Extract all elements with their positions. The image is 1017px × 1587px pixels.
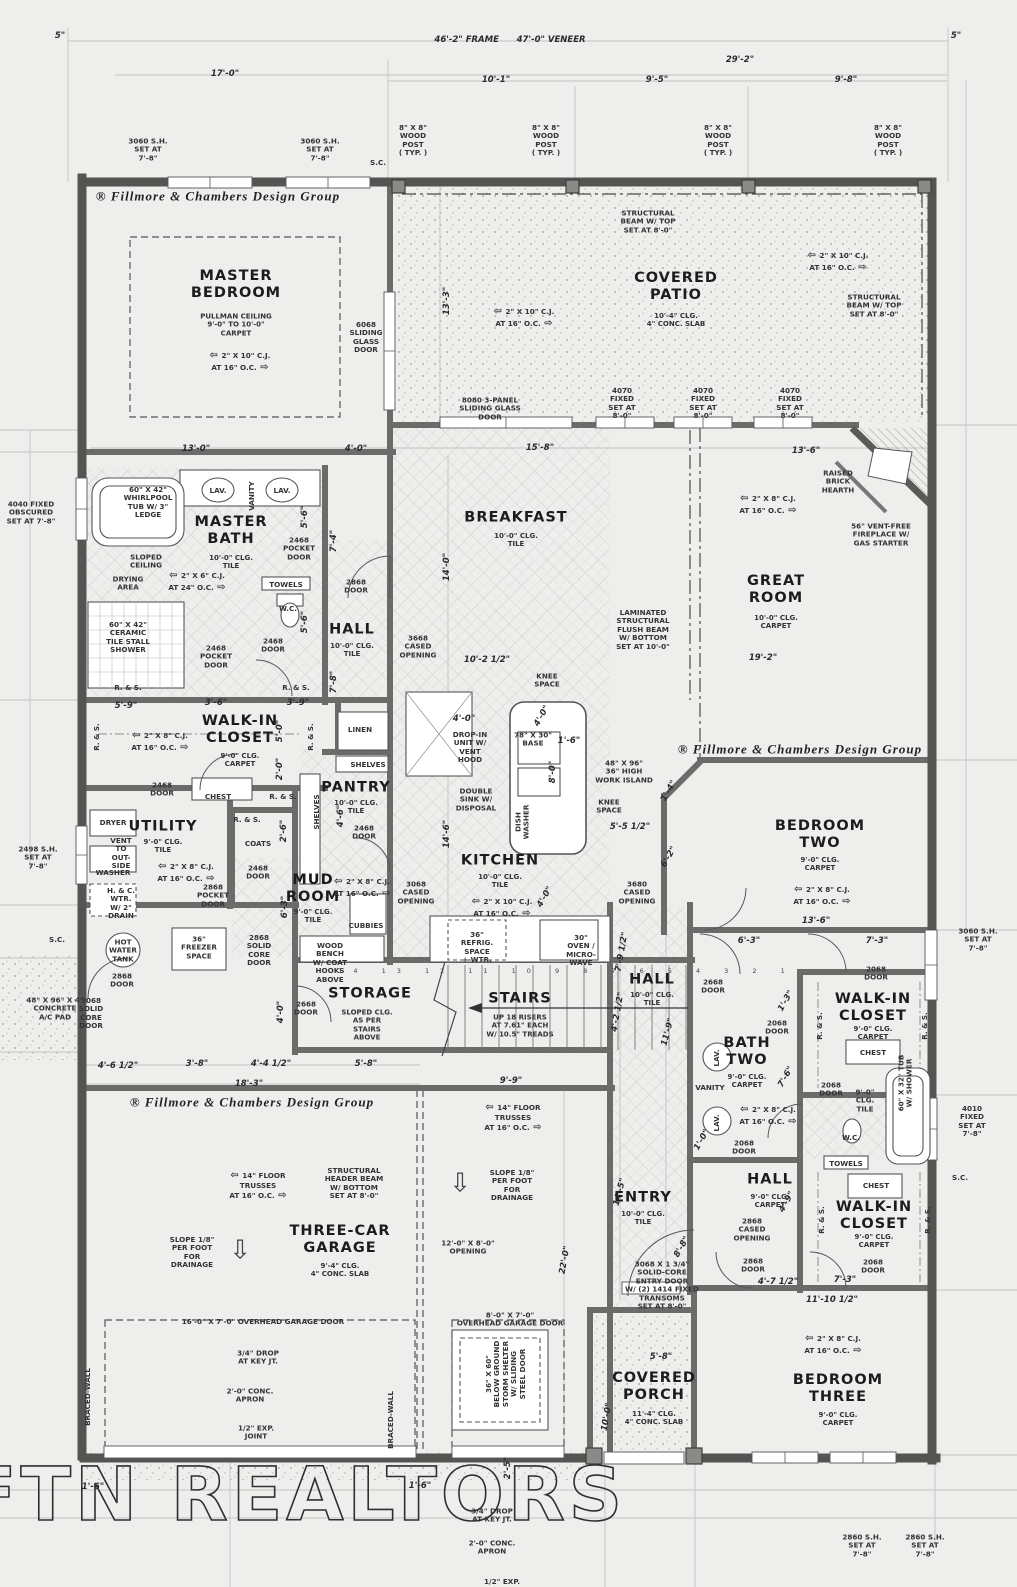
dimension: 9'-9" <box>500 1076 522 1086</box>
room-label-walk-in-closet: WALK-IN CLOSET <box>836 1199 912 1233</box>
note-label: 2868 POCKET DOOR <box>197 883 229 908</box>
dimension: 13'-0" <box>182 444 210 454</box>
note-label: H. & C. WTR. W/ 2" DRAIN <box>107 887 135 921</box>
room-detail-bath-two: 9'-0" CLG. CARPET <box>728 1073 767 1090</box>
note-label: 2860 S.H. SET AT 7'-8" <box>842 1533 881 1558</box>
dimension: 13'-3" <box>442 287 452 315</box>
dimension: 7'-3" <box>866 936 888 946</box>
note-label: 3068 X 1 3/4" SOLID-CORE ENTRY DOOR W/ (… <box>625 1261 699 1312</box>
note-label: R. & S. <box>307 723 315 751</box>
note-label: 2" X 6" C.J. AT 24" O.C. <box>168 570 225 594</box>
dimension: 18'-3" <box>235 1079 263 1089</box>
note-label: 3068 SOLID CORE DOOR <box>79 997 104 1031</box>
note-label: 2868 CASED OPENING <box>734 1217 771 1242</box>
dimension: 4'-6" <box>336 805 346 827</box>
room-detail-master-bath: 10'-0" CLG. TILE <box>209 554 253 571</box>
note-label: 3060 S.H. SET AT 7'-8" <box>128 137 167 162</box>
note-label: R. & S. <box>93 723 101 751</box>
note-label: DOUBLE SINK W/ DISPOSAL <box>456 787 497 812</box>
note-label: 2468 DOOR <box>150 782 174 799</box>
note-label: 30" OVEN / MICRO- WAVE <box>566 934 596 968</box>
room-detail-great-room: 10'-0" CLG. CARPET <box>754 614 798 631</box>
dimension: 19'-2" <box>749 653 777 663</box>
note-label: R. & S. <box>921 1012 929 1040</box>
note-label: R. & S. <box>269 793 297 801</box>
note-label: 2468 DOOR <box>261 638 285 655</box>
note-label: 2" X 8" C.J. AT 16" O.C. <box>804 1333 861 1357</box>
room-label-breakfast: BREAKFAST <box>464 509 567 526</box>
note-label: 2" X 8" C.J. AT 16" O.C. <box>157 861 214 885</box>
note-label: LAV. <box>273 487 290 495</box>
note-label: 3060 S.H. SET AT 7'-8" <box>958 927 997 952</box>
dimension: 7'-6" <box>776 1065 796 1089</box>
note-label: 2" X 8" C.J. AT 16" O.C. <box>131 730 188 754</box>
note-label: W.C. <box>842 1134 860 1142</box>
note-label: LAV. <box>209 487 226 495</box>
room-label-kitchen: KITCHEN <box>461 852 539 869</box>
room-label-great-room: GREAT ROOM <box>747 573 805 607</box>
note-label: W.C. <box>279 605 297 613</box>
dimension: 5'-8" <box>355 1059 377 1069</box>
dimension: 6'-2" <box>659 845 679 869</box>
note-label: S.C. <box>49 936 65 944</box>
dimension: 5'-8" <box>650 1352 672 1362</box>
dimension: 22'-0" <box>558 1245 573 1275</box>
drainage-slope-arrow: ⇩ <box>449 1169 471 1200</box>
room-detail-walk-in-closet: 9'-0" CLG. CARPET <box>854 1025 893 1042</box>
note-label: 36" X 60" BELOW GROUND STORM SHELTER W/ … <box>485 1341 527 1408</box>
note-label: 2468 DOOR <box>246 865 270 882</box>
dimension: 4'-0" <box>535 885 555 909</box>
room-detail-hall: 10'-0" CLG. TILE <box>330 642 374 659</box>
note-label: 8'-0" X 7'-0" OVERHEAD GARAGE DOOR <box>457 1312 563 1329</box>
note-label: 2" X 10" C.J. AT 16" O.C. <box>494 306 555 330</box>
design-group-stamp: ® Fillmore & Chambers Design Group <box>678 741 922 756</box>
note-label: 2" X 10" C.J. AT 16" O.C. <box>210 350 271 374</box>
note-label: R. & S. <box>114 684 142 692</box>
note-label: S.C. <box>952 1174 968 1182</box>
dimension: 1'-4" <box>659 779 679 803</box>
room-label-hall: HALL <box>329 621 375 638</box>
room-label-bedroom-two: BEDROOM TWO <box>775 818 865 852</box>
note-label: LINEN <box>348 726 372 734</box>
note-label: 4070 FIXED SET AT 8'-0" <box>608 387 635 421</box>
note-label: 2" X 8" C.J. AT 16" O.C. <box>739 493 796 517</box>
note-label: S.C. <box>370 159 386 167</box>
design-group-stamp: ® Fillmore & Chambers Design Group <box>130 1094 374 1109</box>
note-label: 2" X 10" C.J. AT 16" O.C. <box>472 896 533 920</box>
dimension: 5'-5 1/2" <box>610 822 650 832</box>
note-label: 48" X 96" X 4" CONCRETE A/C PAD <box>26 996 83 1021</box>
drainage-slope-arrow: ⇩ <box>229 1236 251 1267</box>
stair-tread-numbers: 14 13 12 11 10 9 8 7 6 5 4 3 2 1 <box>338 968 795 976</box>
dimension: 4'-4 1/2" <box>251 1059 291 1069</box>
room-detail-walk-in-closet: 9'-0" CLG. CARPET <box>221 752 260 769</box>
note-label: 3060 S.H. SET AT 7'-8" <box>300 137 339 162</box>
dimension: 1'-3" <box>776 989 796 1013</box>
note-label: 2" X 8" C.J. AT 16" O.C. <box>333 876 390 900</box>
note-label: 2468 POCKET DOOR <box>283 536 315 561</box>
room-detail-hall: 10'-0" CLG. TILE <box>630 991 674 1008</box>
note-label: 2498 S.H. SET AT 7'-8" <box>18 845 57 870</box>
dimension: 8'-8" <box>672 1235 692 1259</box>
note-label: DROP-IN UNIT W/ VENT HOOD <box>453 731 487 765</box>
dimension: 5" <box>951 31 961 41</box>
dimension: 6'-3" <box>280 896 290 918</box>
note-label: 1/2" EXP. <box>484 1578 520 1586</box>
note-label: SLOPE 1/8" PER FOOT FOR DRAINAGE <box>490 1169 535 1203</box>
note-label: 2668 DOOR <box>701 979 725 996</box>
note-label: COATS <box>245 840 271 848</box>
note-label: CHEST <box>860 1049 886 1057</box>
note-label: TOWELS <box>829 1160 863 1168</box>
dimension: 6'-3" <box>738 936 760 946</box>
note-label: CHEST <box>205 793 231 801</box>
room-detail-covered-patio: 10'-4" CLG. 4" CONC. SLAB <box>647 312 705 329</box>
note-label: STRUCTURAL BEAM W/ TOP SET AT 8'-0" <box>847 293 902 318</box>
note-label: R. & S. <box>233 816 261 824</box>
note-label: WASHER <box>96 869 131 877</box>
note-label: LAMINATED STRUCTURAL FLUSH BEAM W/ BOTTO… <box>616 609 670 651</box>
room-label-covered-porch: COVERED PORCH <box>612 1370 696 1404</box>
note-label: 3/4" DROP AT KEY JT. <box>237 1350 279 1367</box>
room-label-master-bath: MASTER BATH <box>194 514 267 548</box>
note-label: VANITY <box>695 1084 724 1092</box>
labels-layer: MASTER BEDROOMPULLMAN CEILING 9'-0" TO 1… <box>0 0 1017 1587</box>
note-label: 2'-0" CONC. APRON <box>227 1388 274 1405</box>
note-label: VENT TO OUT- SIDE <box>110 837 131 871</box>
note-label: 2468 DOOR <box>352 825 376 842</box>
note-label: R. & S. <box>924 1206 932 1234</box>
note-label: 4040 FIXED OBSCURED SET AT 7'-8" <box>7 500 56 525</box>
room-detail-covered-porch: 11'-4" CLG. 4" CONC. SLAB <box>625 1410 683 1427</box>
dimension: 10'-1" <box>482 75 510 85</box>
note-label: KNEE SPACE <box>596 799 622 816</box>
note-label: DISH WASHER <box>515 805 532 840</box>
note-label: 9'-0" CLG. TILE <box>856 1088 875 1113</box>
room-label-utility: UTILITY <box>128 818 197 835</box>
room-label-master-bedroom: MASTER BEDROOM <box>191 268 281 302</box>
note-label: HOT WATER TANK <box>109 938 137 963</box>
floorplan-sheet: MASTER BEDROOMPULLMAN CEILING 9'-0" TO 1… <box>0 0 1017 1587</box>
note-label: 2" X 10" C.J. AT 16" O.C. <box>808 250 869 274</box>
dimension: 29'-2" <box>726 55 754 65</box>
note-label: 3680 CASED OPENING <box>619 880 656 905</box>
note-label: LAV. <box>713 1049 721 1066</box>
dimension: 13'-6" <box>792 446 820 456</box>
note-label: 2468 POCKET DOOR <box>200 644 232 669</box>
room-label-walk-in-closet: WALK-IN CLOSET <box>202 713 278 747</box>
room-label-hall: HALL <box>747 1171 793 1188</box>
dimension: 2'-0" <box>275 758 285 780</box>
note-label: TOWELS <box>269 581 303 589</box>
room-label-pantry: PANTRY <box>321 779 390 796</box>
note-label: 2068 DOOR <box>765 1020 789 1037</box>
dimension: 14'-0" <box>442 553 452 581</box>
note-label: 2" X 8" C.J. AT 16" O.C. <box>793 884 850 908</box>
dimension: 1'-0" <box>692 1128 712 1152</box>
room-label-covered-patio: COVERED PATIO <box>634 270 718 304</box>
note-label: 2'-0" CONC. APRON <box>469 1540 516 1557</box>
note-label: 8" X 8" WOOD POST ( TYP. ) <box>532 124 560 158</box>
note-label: SLOPED CEILING <box>130 554 162 571</box>
dimension: 15'-8" <box>526 443 554 453</box>
dimension: 11'-10 1/2" <box>806 1295 858 1305</box>
dimension: 8'-0" <box>548 761 558 783</box>
dimension: 3'-6" <box>205 698 227 708</box>
room-detail-storage: SLOPED CLG. AS PER STAIRS ABOVE <box>341 1009 392 1042</box>
note-label: BRACED-WALL <box>84 1368 92 1426</box>
note-label: 4070 FIXED SET AT 8'-0" <box>776 387 803 421</box>
note-label: 60" X 42" WHIRLPOOL TUB W/ 3" LEDGE <box>124 486 173 520</box>
note-label: LAV. <box>713 1114 721 1131</box>
note-label: 2868 DOOR <box>344 579 368 596</box>
note-label: 2668 DOOR <box>294 1001 318 1018</box>
note-label: SLOPE 1/8" PER FOOT FOR DRAINAGE <box>170 1236 215 1270</box>
note-label: 60" X 42" CERAMIC TILE STALL SHOWER <box>106 621 150 655</box>
dimension: 4'-7 1/2" <box>758 1277 798 1287</box>
dimension: 11'-9" <box>659 1017 676 1047</box>
note-label: 8" X 8" WOOD POST ( TYP. ) <box>704 124 732 158</box>
note-label: STRUCTURAL HEADER BEAM W/ BOTTOM SET AT … <box>325 1167 384 1201</box>
note-label: 2868 DOOR <box>110 973 134 990</box>
dimension: 9'-8" <box>835 75 857 85</box>
note-label: 8" X 8" WOOD POST ( TYP. ) <box>399 124 427 158</box>
dimension: 7'-3" <box>834 1275 856 1285</box>
note-label: 14" FLOOR TRUSSES AT 16" O.C. <box>484 1102 541 1134</box>
note-label: 56" VENT-FREE FIREPLACE W/ GAS STARTER <box>851 522 911 547</box>
room-detail-mud-room: 9'-0" CLG. TILE <box>294 908 333 925</box>
room-label-three-car-garage: THREE-CAR GARAGE <box>289 1223 390 1257</box>
dimension: 5'-9" <box>115 701 137 711</box>
dimension: 7'-8" <box>329 671 339 693</box>
room-label-storage: STORAGE <box>328 985 412 1002</box>
note-label: 78" X 30" BASE <box>514 732 552 749</box>
note-label: 4010 FIXED SET AT 7'-8" <box>958 1105 985 1139</box>
note-label: 2" X 8" C.J. AT 16" O.C. <box>739 1104 796 1128</box>
note-label: CUBBIES <box>349 922 384 930</box>
note-label: 8080 3-PANEL SLIDING GLASS DOOR <box>459 396 521 421</box>
dimension: 9'-5" <box>646 75 668 85</box>
realtor-watermark: FTN REALTORS <box>0 1452 626 1538</box>
note-label: 36" REFRIG. SPACE + WTR. <box>461 931 493 965</box>
room-label-bedroom-three: BEDROOM THREE <box>793 1372 883 1406</box>
note-label: 6068 SLIDING GLASS DOOR <box>350 321 383 355</box>
note-label: CHEST <box>863 1182 889 1190</box>
note-label: DRYING AREA <box>113 576 144 593</box>
dimension: 2'-6" <box>279 820 289 842</box>
note-label: 2860 S.H. SET AT 7'-8" <box>905 1533 944 1558</box>
dimension: 4'-2 1/2" <box>610 991 627 1032</box>
dimension: 13'-6" <box>802 916 830 926</box>
dimension: 3'-8" <box>186 1059 208 1069</box>
room-label-stairs: STAIRS <box>488 990 551 1007</box>
dimension: 4'-0" <box>532 704 552 728</box>
room-detail-bedroom-two: 9'-0" CLG. CARPET <box>801 856 840 873</box>
note-label: 2068 DOOR <box>732 1140 756 1157</box>
note-label: 1/2" EXP. JOINT <box>238 1425 274 1442</box>
note-label: BRACED-WALL <box>387 1391 395 1449</box>
room-detail-utility: 9'-0" CLG. TILE <box>144 838 183 855</box>
dimension: 3'-9" <box>287 698 309 708</box>
dimension: 7'-4" <box>329 530 339 552</box>
dimension: 4'-6 1/2" <box>98 1061 138 1071</box>
note-label: STRUCTURAL BEAM W/ TOP SET AT 8'-0" <box>621 209 676 234</box>
dimension: 14'-6" <box>442 820 452 848</box>
room-label-mud-room: MUD ROOM <box>286 872 340 906</box>
note-label: SHELVES <box>313 794 321 829</box>
note-label: 3068 CASED OPENING <box>398 880 435 905</box>
note-label: 12'-0" X 8'-0" OPENING <box>441 1240 494 1257</box>
dimension: 5'-6" <box>300 506 310 528</box>
dimension: 10'-2 1/2" <box>464 655 510 665</box>
room-detail-stairs: UP 18 RISERS AT 7.61" EACH W/ 10.5" TREA… <box>486 1014 553 1039</box>
note-label: 3668 CASED OPENING <box>400 634 437 659</box>
note-label: 4070 FIXED SET AT 8'-0" <box>689 387 716 421</box>
dimension: 17'-0" <box>211 69 239 79</box>
dimension: 4'-0" <box>453 714 475 724</box>
room-label-bath-two: BATH TWO <box>723 1035 770 1069</box>
note-label: 2868 DOOR <box>741 1258 765 1275</box>
note-label: 2068 DOOR <box>819 1082 843 1099</box>
dimension: 5'-6" <box>300 611 310 633</box>
note-label: 8" X 8" WOOD POST ( TYP. ) <box>874 124 902 158</box>
note-label: 14" FLOOR TRUSSES AT 16" O.C. <box>229 1170 286 1202</box>
dimension: 4'-0" <box>276 1001 286 1023</box>
note-label: 2068 DOOR <box>864 966 888 983</box>
note-label: 2868 SOLID CORE DOOR <box>247 934 272 968</box>
note-label: R. & S. <box>816 1012 824 1040</box>
room-detail-entry: 10'-0" CLG. TILE <box>621 1210 665 1227</box>
note-label: DRYER <box>100 819 127 827</box>
note-label: 60" X 32" TUB W/ SHOWER <box>898 1055 915 1112</box>
room-detail-walk-in-closet: 9'-0" CLG. CARPET <box>855 1233 894 1250</box>
note-label: RAISED BRICK HEARTH <box>822 469 855 494</box>
note-label: 16'-0" X 7'-0" OVERHEAD GARAGE DOOR <box>182 1318 344 1326</box>
note-label: 2068 DOOR <box>861 1259 885 1276</box>
room-label-walk-in-closet: WALK-IN CLOSET <box>835 991 911 1025</box>
room-detail-master-bedroom: PULLMAN CEILING 9'-0" TO 10'-0" CARPET <box>200 313 272 338</box>
note-label: 48" X 96" 36" HIGH WORK ISLAND <box>595 759 653 784</box>
dimension: 4'-0" <box>345 444 367 454</box>
note-label: R. & S. <box>818 1206 826 1234</box>
note-label: R. & S. <box>282 684 310 692</box>
room-detail-three-car-garage: 9'-4" CLG. 4" CONC. SLAB <box>311 1262 369 1279</box>
note-label: WOOD BENCH W/ COAT HOOKS ABOVE <box>313 942 347 984</box>
dimension: 5" <box>55 31 65 41</box>
dimension: 5'-0" <box>275 720 285 742</box>
room-detail-breakfast: 10'-0" CLG. TILE <box>494 532 538 549</box>
note-label: KNEE SPACE <box>534 673 560 690</box>
note-label: 36" FREEZER SPACE <box>181 935 217 960</box>
note-label: VANITY <box>248 481 256 510</box>
design-group-stamp: ® Fillmore & Chambers Design Group <box>96 188 340 203</box>
dimension: 10'-0" <box>600 1402 615 1432</box>
dimension: 1'-6" <box>558 736 580 746</box>
room-detail-bedroom-three: 9'-0" CLG. CARPET <box>819 1411 858 1428</box>
note-label: SHELVES <box>350 761 385 769</box>
dimension: 46'-2" FRAME 47'-0" VENEER <box>434 35 585 45</box>
room-detail-kitchen: 10'-0" CLG. TILE <box>478 873 522 890</box>
